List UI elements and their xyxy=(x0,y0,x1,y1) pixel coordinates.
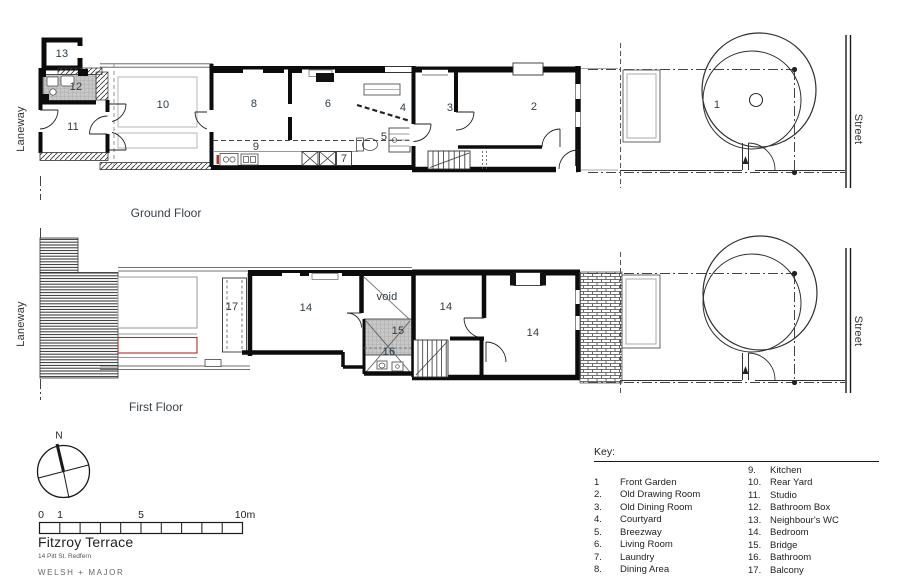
drawing-address: 14 Pitt St. Redfern xyxy=(38,553,133,560)
room-label-14-mid: 14 xyxy=(440,301,453,313)
first-street-label: Street xyxy=(852,316,864,347)
key-item: 6.Living Room xyxy=(594,539,700,551)
scale-label-10m: 10m xyxy=(235,509,255,521)
room-label-13: 13 xyxy=(56,48,69,60)
first-floor-plan xyxy=(40,228,851,400)
key-item: 11.Studio xyxy=(748,490,839,502)
key-item: 9.Kitchen xyxy=(748,465,839,477)
room-label-2: 2 xyxy=(531,101,537,113)
architect-firm: WELSH + MAJOR xyxy=(38,568,133,577)
room-label-7: 7 xyxy=(341,153,347,165)
key-rule xyxy=(594,461,879,462)
scale-label-0: 0 xyxy=(38,509,44,521)
room-label-5: 5 xyxy=(381,131,387,143)
room-label-8: 8 xyxy=(251,98,257,110)
room-label-17: 17 xyxy=(226,301,239,313)
key-item: 10.Rear Yard xyxy=(748,477,839,489)
ground-laneway-label: Laneway xyxy=(15,106,27,151)
key-item: 5.Breezway xyxy=(594,527,700,539)
key-item: 16.Bathroom xyxy=(748,552,839,564)
title-block: Fitzroy Terrace 14 Pitt St. Redfern WELS… xyxy=(38,534,133,577)
scale-label-5: 5 xyxy=(138,509,144,521)
room-label-9: 9 xyxy=(253,141,259,153)
room-label-16: 16 xyxy=(383,346,396,358)
room-label-1: 1 xyxy=(714,99,720,111)
key-item: 14.Bedroom xyxy=(748,527,839,539)
room-label-6: 6 xyxy=(325,98,331,110)
north-label: N xyxy=(55,431,62,442)
key-item: 2.Old Drawing Room xyxy=(594,489,700,501)
ground-floor-plan xyxy=(36,33,851,200)
key-column-1: 1Front Garden 2.Old Drawing Room 3.Old D… xyxy=(594,477,700,577)
north-compass xyxy=(38,444,90,498)
room-label-15: 15 xyxy=(392,325,405,337)
room-label-4: 4 xyxy=(400,102,406,114)
drawing-title: Fitzroy Terrace xyxy=(38,534,133,550)
ground-street-label: Street xyxy=(852,114,864,145)
ground-floor-caption: Ground Floor xyxy=(131,206,202,220)
key-item: 7.Laundry xyxy=(594,552,700,564)
key-item: 3.Old Dining Room xyxy=(594,502,700,514)
key-item: 13.Neighbour's WC xyxy=(748,515,839,527)
key-legend: Key: 1Front Garden 2.Old Drawing Room 3.… xyxy=(594,446,880,465)
room-label-12: 12 xyxy=(70,81,83,93)
key-item: 12.Bathroom Box xyxy=(748,502,839,514)
key-item: 15.Bridge xyxy=(748,540,839,552)
room-label-14-rear: 14 xyxy=(300,302,313,314)
first-laneway-label: Laneway xyxy=(15,301,27,346)
scale-bar xyxy=(40,523,243,534)
room-label-14-front: 14 xyxy=(527,327,540,339)
key-column-2: 9.Kitchen 10.Rear Yard 11.Studio 12.Bath… xyxy=(748,465,839,577)
void-label: void xyxy=(377,291,398,303)
key-item: 1Front Garden xyxy=(594,477,700,489)
room-label-11: 11 xyxy=(67,121,79,133)
scale-label-1: 1 xyxy=(57,509,63,521)
key-item: 4.Courtyard xyxy=(594,514,700,526)
key-title: Key: xyxy=(594,446,880,458)
room-label-10: 10 xyxy=(157,99,170,111)
key-item: 17.Balcony xyxy=(748,565,839,577)
architectural-drawing-canvas: Laneway Street 13 12 11 10 8 6 9 7 5 4 3… xyxy=(0,0,900,586)
room-label-3: 3 xyxy=(447,102,453,114)
first-floor-caption: First Floor xyxy=(129,400,183,414)
key-item: 8.Dining Area xyxy=(594,564,700,576)
